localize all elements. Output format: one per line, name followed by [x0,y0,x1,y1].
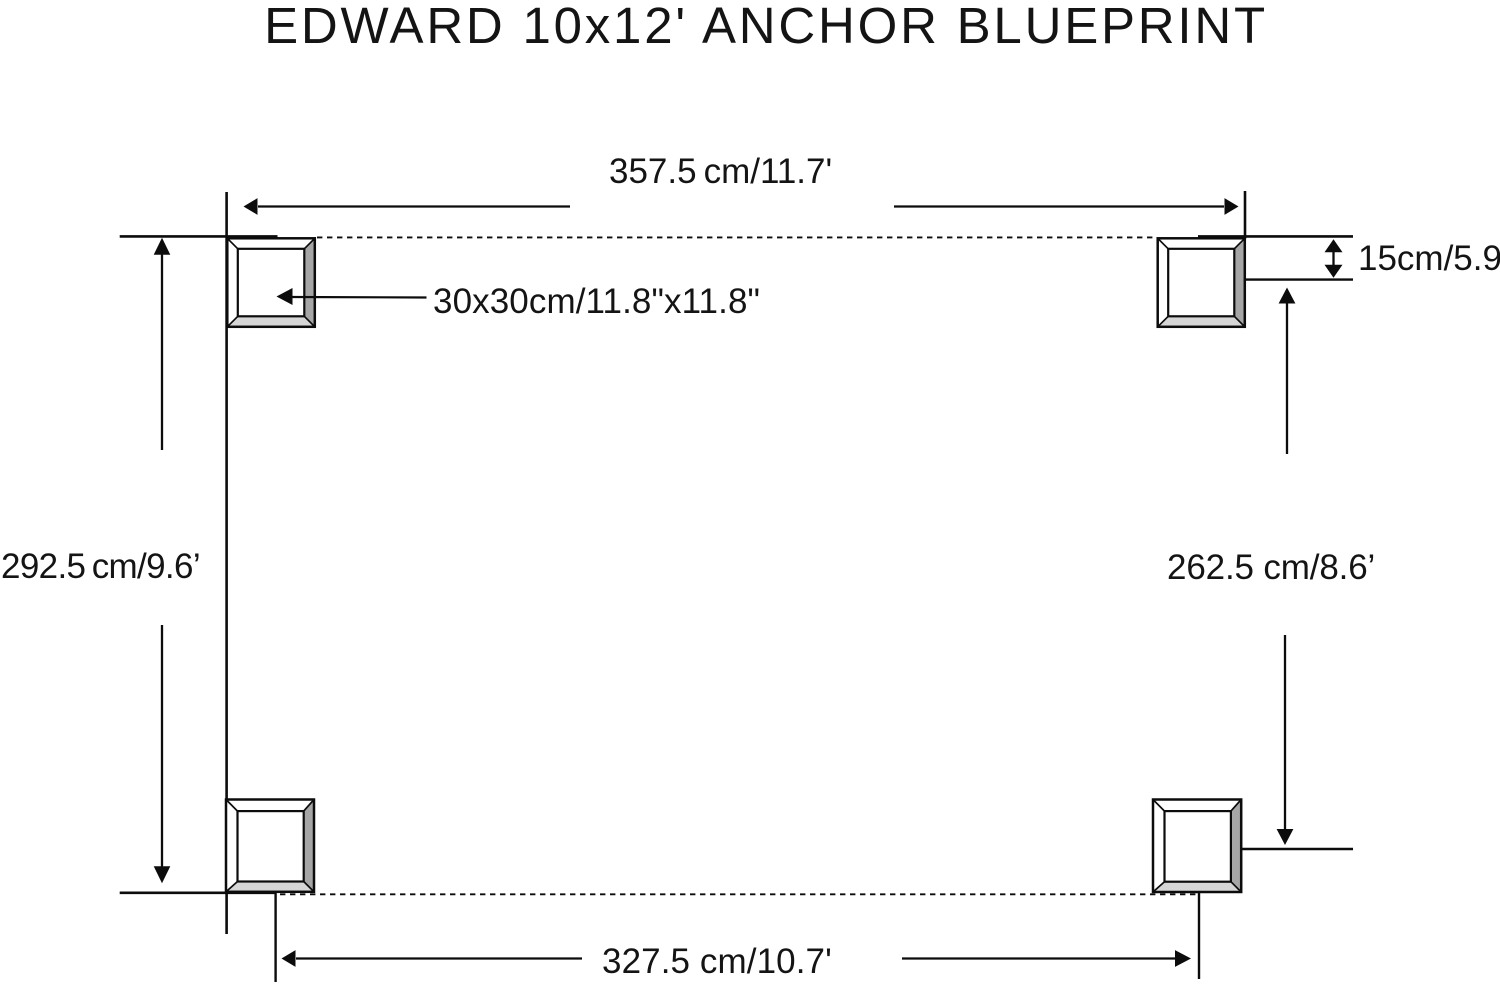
svg-text:292.5 cm/9.6’: 292.5 cm/9.6’ [1,547,200,586]
svg-text:357.5 cm/11.7': 357.5 cm/11.7' [609,152,832,191]
svg-text:327.5 cm/10.7': 327.5 cm/10.7' [602,942,832,981]
svg-text:262.5 cm/8.6’: 262.5 cm/8.6’ [1167,548,1375,587]
svg-text:EDWARD 10x12' ANCHOR BLUEPRINT: EDWARD 10x12' ANCHOR BLUEPRINT [264,0,1268,54]
svg-text:15cm/5.9: 15cm/5.9 [1358,239,1500,278]
svg-text:30x30cm/11.8"x11.8": 30x30cm/11.8"x11.8" [433,282,760,321]
